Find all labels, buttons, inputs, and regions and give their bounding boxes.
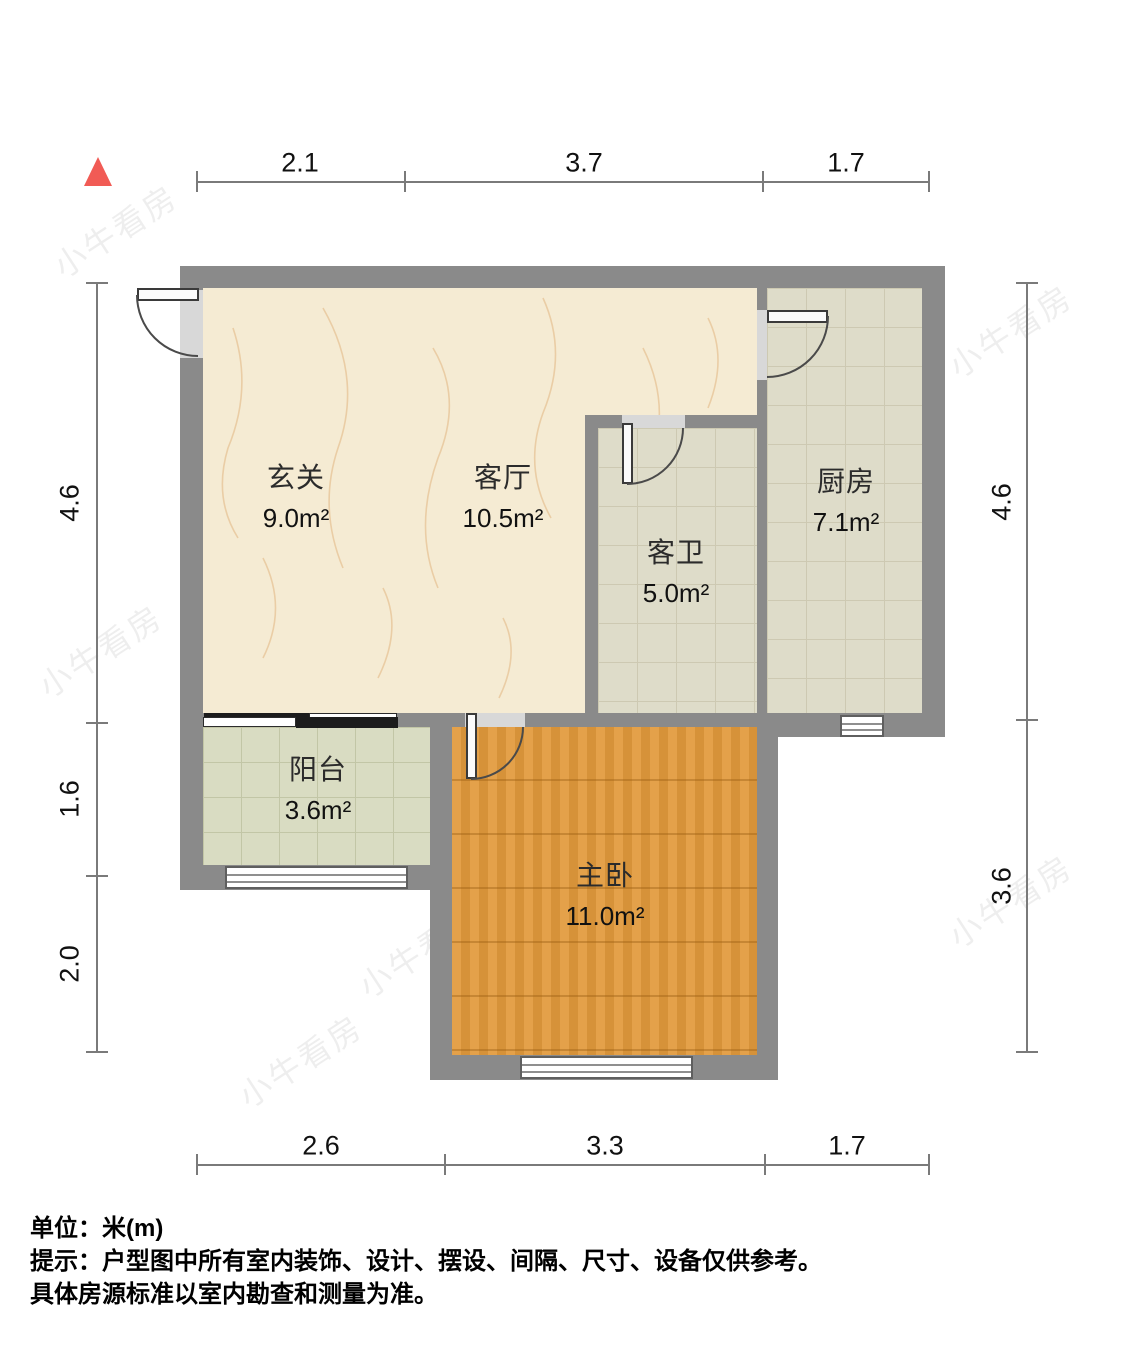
room-area: 9.0m² bbox=[263, 503, 329, 534]
units-note: 单位：米(m) bbox=[30, 1212, 822, 1245]
kitchen-door-opening bbox=[757, 310, 767, 380]
dim-top-1: 2.1 bbox=[281, 148, 319, 179]
dim-tick bbox=[1016, 719, 1038, 721]
north-indicator-icon bbox=[84, 157, 112, 186]
dim-tick bbox=[86, 282, 108, 284]
watermark: 小牛看房 bbox=[29, 593, 171, 708]
entry-door-leaf bbox=[137, 288, 199, 301]
dim-left-3: 2.0 bbox=[55, 945, 86, 983]
dim-right-1: 4.6 bbox=[987, 483, 1018, 521]
dim-tick bbox=[444, 1154, 446, 1175]
room-name: 客卫 bbox=[643, 531, 709, 571]
wall-left bbox=[180, 288, 203, 890]
room-area: 7.1m² bbox=[813, 507, 879, 538]
dim-bottom-3: 1.7 bbox=[828, 1131, 866, 1162]
bedroom-door-leaf bbox=[466, 713, 477, 779]
sliding-door-panel bbox=[203, 717, 296, 727]
bedroom-window bbox=[520, 1056, 693, 1079]
watermark: 小牛看房 bbox=[939, 273, 1081, 388]
dim-bottom-2: 3.3 bbox=[586, 1131, 624, 1162]
watermark: 小牛看房 bbox=[229, 1003, 371, 1118]
bathroom-door-leaf bbox=[622, 423, 633, 484]
room-name: 玄关 bbox=[263, 456, 329, 496]
room-name: 阳台 bbox=[285, 748, 351, 788]
dim-tick bbox=[1016, 282, 1038, 284]
room-label-balcony: 阳台 3.6m² bbox=[285, 748, 351, 826]
room-label-entry: 玄关 9.0m² bbox=[263, 456, 329, 534]
room-area: 3.6m² bbox=[285, 795, 351, 826]
room-label-bedroom: 主卧 11.0m² bbox=[566, 854, 645, 932]
room-label-living: 客厅 10.5m² bbox=[463, 456, 544, 534]
watermark: 小牛看房 bbox=[44, 173, 186, 288]
dim-bottom-1: 2.6 bbox=[302, 1131, 340, 1162]
dim-right-2: 3.6 bbox=[987, 867, 1018, 905]
balcony-window bbox=[225, 866, 408, 889]
dim-line-right bbox=[1026, 283, 1028, 1053]
disclaimer-line-2: 具体房源标准以室内勘查和测量为准。 bbox=[30, 1278, 822, 1311]
room-name: 主卧 bbox=[566, 854, 645, 894]
kitchen-door-leaf bbox=[767, 310, 828, 323]
disclaimer-line-1: 提示：户型图中所有室内装饰、设计、摆设、间隔、尺寸、设备仅供参考。 bbox=[30, 1245, 822, 1278]
room-label-bath: 客卫 5.0m² bbox=[643, 531, 709, 609]
room-label-kitchen: 厨房 7.1m² bbox=[813, 460, 879, 538]
wall-bedroom-right bbox=[757, 727, 778, 1080]
dim-tick bbox=[86, 1051, 108, 1053]
wall-bath-left bbox=[585, 428, 598, 713]
room-area: 5.0m² bbox=[643, 578, 709, 609]
room-area: 10.5m² bbox=[463, 503, 544, 534]
dim-line-left bbox=[96, 283, 98, 1053]
room-name: 厨房 bbox=[813, 460, 879, 500]
dim-tick bbox=[86, 875, 108, 877]
dim-top-3: 1.7 bbox=[827, 148, 865, 179]
wall-top bbox=[180, 266, 945, 288]
sliding-door-panel bbox=[296, 717, 398, 728]
dim-tick bbox=[196, 1154, 198, 1175]
dim-left-1: 4.6 bbox=[55, 484, 86, 522]
dim-tick bbox=[196, 171, 198, 192]
dim-tick bbox=[762, 171, 764, 192]
dim-tick bbox=[86, 722, 108, 724]
dim-left-2: 1.6 bbox=[55, 780, 86, 818]
dim-line-bottom bbox=[197, 1164, 930, 1166]
kitchen-window bbox=[840, 715, 884, 737]
wall-right bbox=[922, 288, 945, 737]
room-area: 11.0m² bbox=[566, 901, 645, 932]
dim-tick bbox=[1016, 1051, 1038, 1053]
footer-notes: 单位：米(m) 提示：户型图中所有室内装饰、设计、摆设、间隔、尺寸、设备仅供参考… bbox=[30, 1212, 822, 1311]
dim-tick bbox=[928, 171, 930, 192]
dim-line-top bbox=[197, 181, 930, 183]
dim-top-2: 3.7 bbox=[565, 148, 603, 179]
wall-bedroom-left bbox=[430, 713, 452, 1080]
dim-tick bbox=[928, 1154, 930, 1175]
room-name: 客厅 bbox=[463, 456, 544, 496]
floorplan-page: 小牛看房 小牛看房 小牛看房 小牛看房 小牛看房 小牛看房 小牛看房 小牛看房 … bbox=[0, 0, 1125, 1346]
dim-tick bbox=[764, 1154, 766, 1175]
dim-tick bbox=[404, 171, 406, 192]
